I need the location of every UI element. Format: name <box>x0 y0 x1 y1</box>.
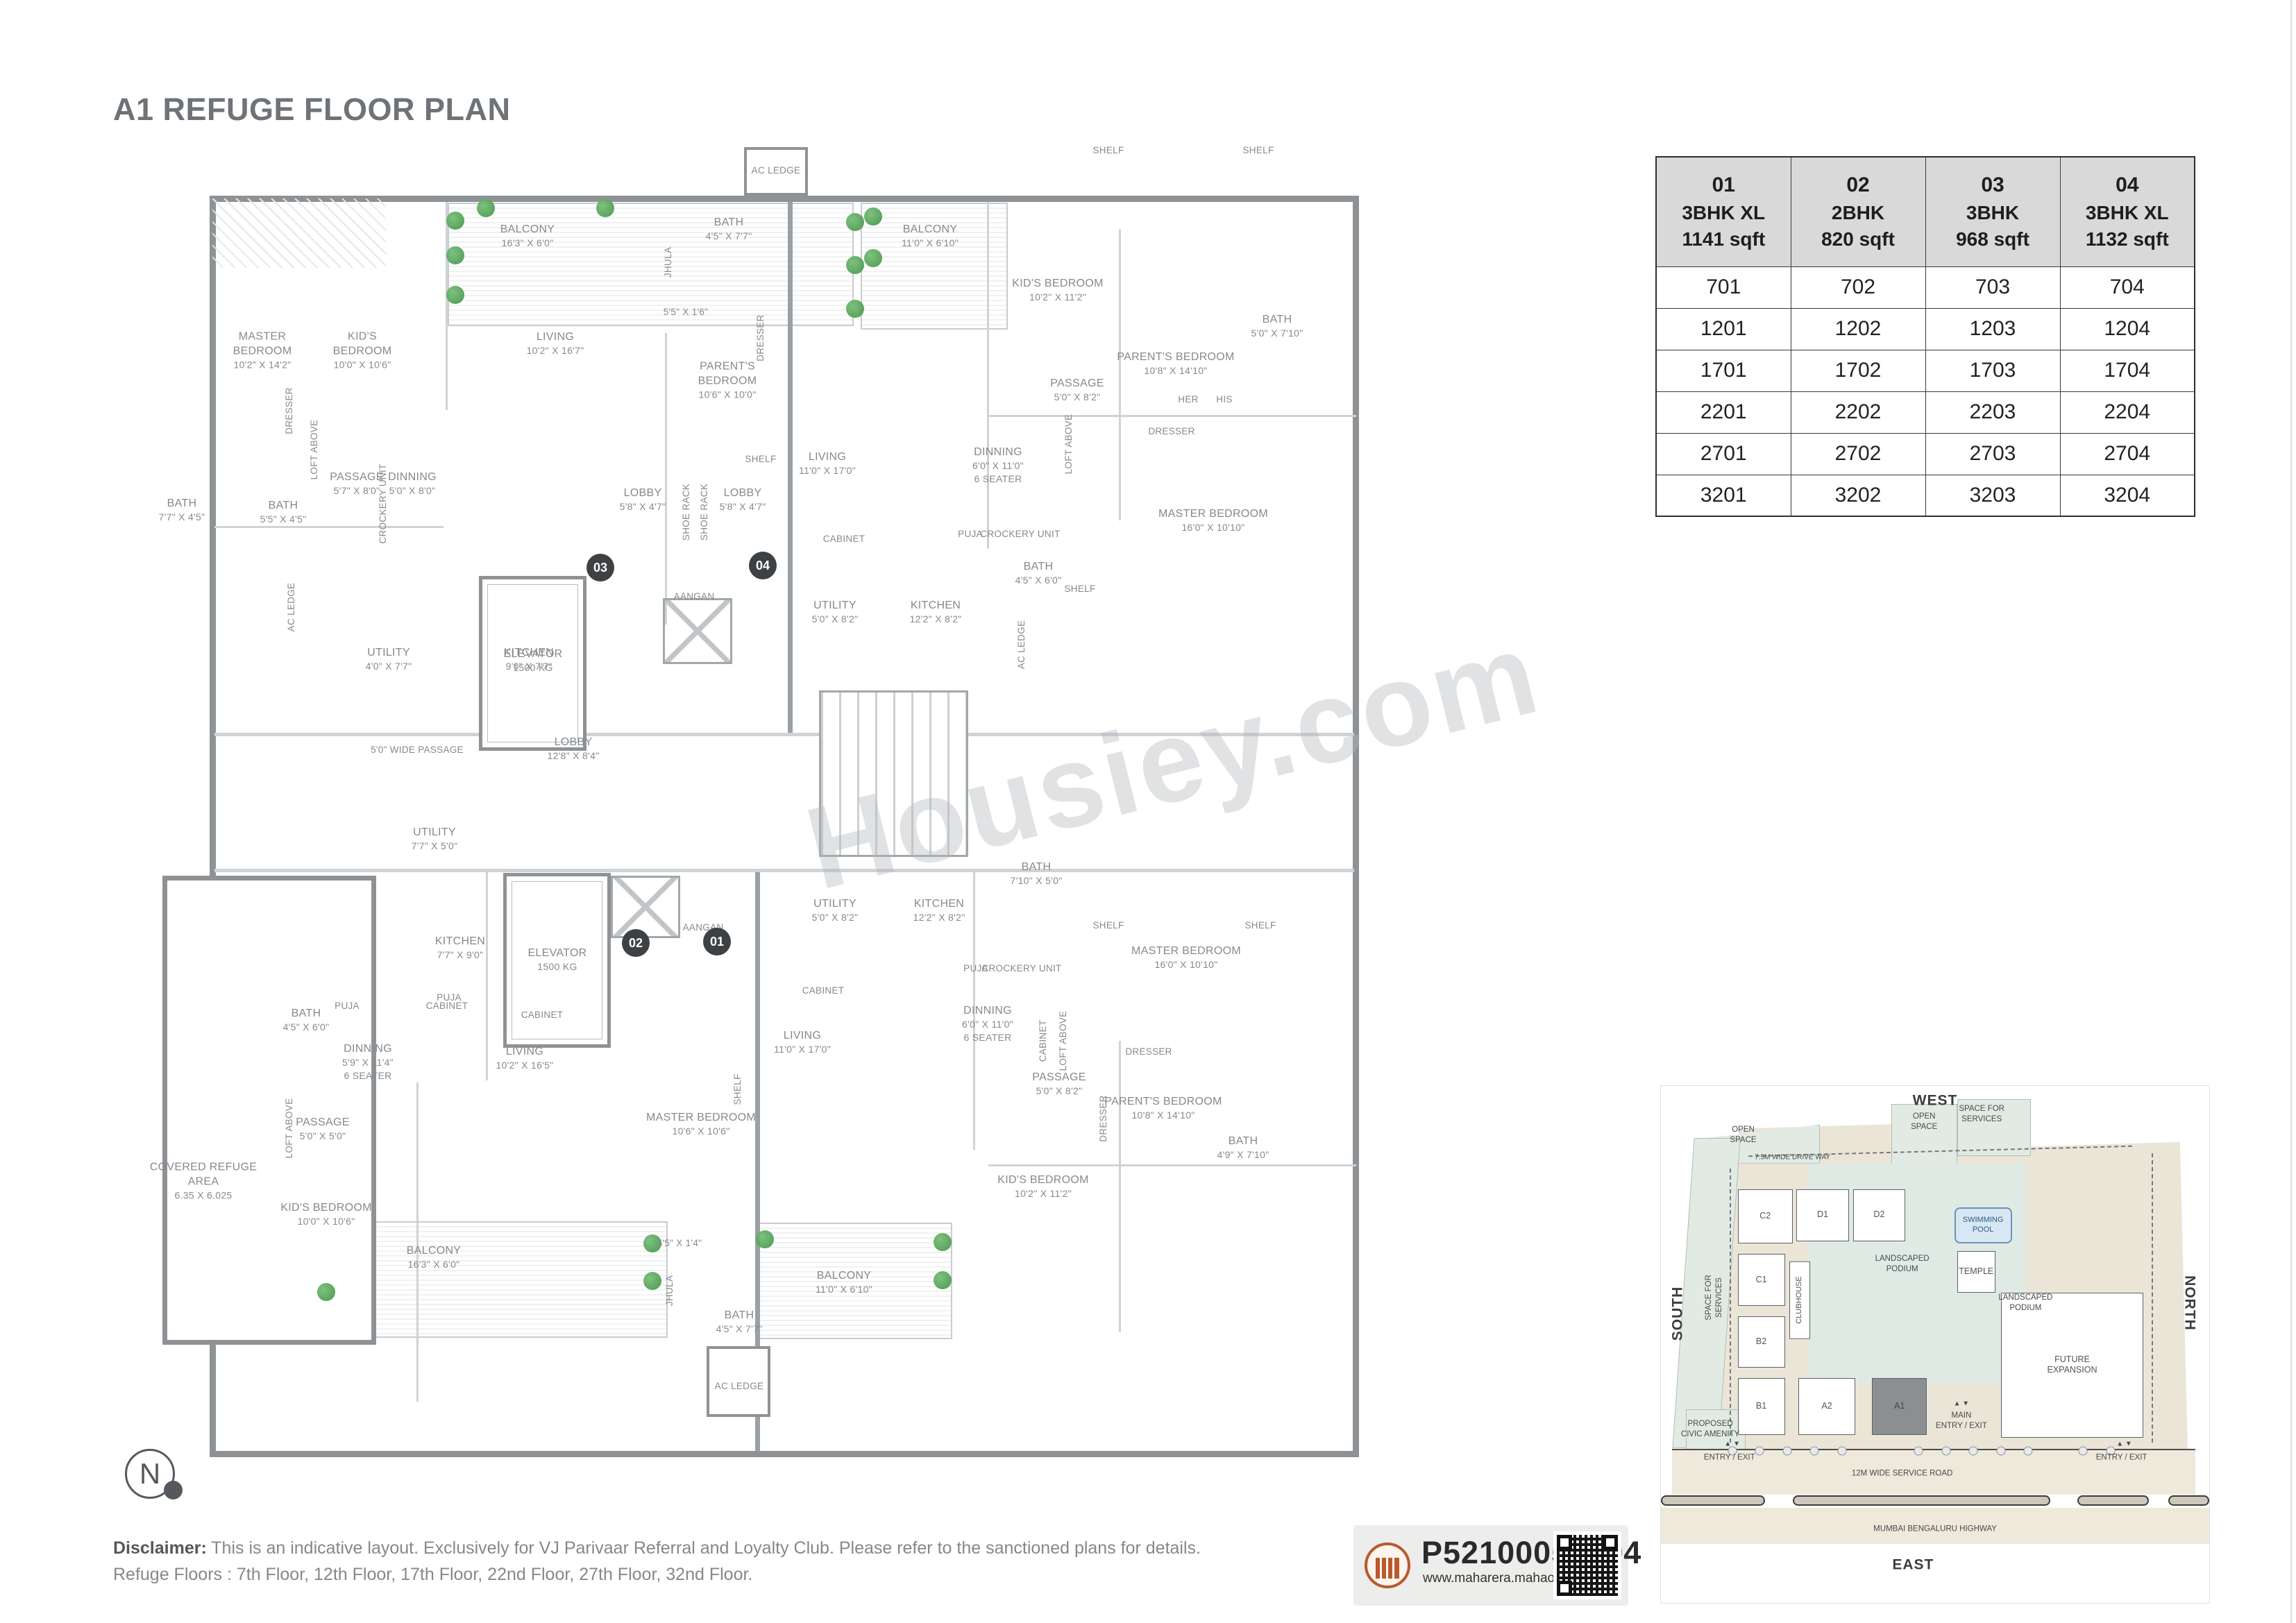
map-label-entry-exit: ENTRY / EXIT <box>2096 1453 2147 1463</box>
room-dimension: 7'7" X 4'5" <box>159 511 205 523</box>
room-label-balcony: BALCONY16'3" X 6'0" <box>407 1243 462 1271</box>
room-label-cabinet: CABINET <box>802 985 845 997</box>
room-label-passage: PASSAGE5'7" X 8'0" <box>330 470 383 498</box>
plant-icon <box>596 199 614 217</box>
room-label-dresser: DRESSER <box>1125 1046 1172 1058</box>
room-dimension: 10'0" X 10'6" <box>280 1215 371 1227</box>
room-dimension: 11'0" X 6'10" <box>902 237 959 249</box>
room-label-cabinet: CABINET <box>521 1009 564 1021</box>
site-building-d2: D2 <box>1853 1189 1906 1241</box>
unit-badge-04: 04 <box>749 552 777 579</box>
tree-icon <box>1941 1446 1950 1455</box>
room-label-loft-above: LOFT ABOVE <box>1063 414 1075 475</box>
room-dimension: 1500 KG <box>527 960 586 973</box>
room-label-shelf: SHELF <box>732 1073 744 1105</box>
site-building-c2: C2 <box>1738 1189 1793 1243</box>
wall <box>214 526 444 528</box>
room-label-loft-above: LOFT ABOVE <box>283 1098 296 1159</box>
disclaimer-text: This is an indicative layout. Exclusivel… <box>207 1538 1201 1558</box>
room-label-dinning: DINNING6'0" X 11'0" 6 SEATER <box>962 1003 1013 1044</box>
unit-cell-1703: 1703 <box>1925 350 2060 391</box>
site-building-future-expansion: FUTURE EXPANSION <box>2001 1293 2143 1438</box>
room-dimension: 4'0" X 7'7" <box>366 660 412 672</box>
room-label-dinning: DINNING6'0" X 11'0" 6 SEATER <box>972 445 1024 485</box>
plant-icon <box>846 256 864 274</box>
room-label-5-5-x-1-4: 5'5" X 1'4" <box>657 1237 702 1250</box>
site-building-clubhouse: CLUBHOUSE <box>1789 1261 1810 1339</box>
plant-icon <box>446 212 464 230</box>
room-dimension: 10'8" X 14'10" <box>1104 1109 1222 1121</box>
room-label-bath: BATH7'10" X 5'0" <box>1011 860 1063 887</box>
site-building-d1: D1 <box>1796 1189 1849 1241</box>
plant-icon <box>864 207 882 226</box>
tree-icon <box>1914 1446 1923 1455</box>
room-label-ac-ledge: AC LEDGE <box>752 164 801 177</box>
wall <box>446 202 448 410</box>
room-label-dinning: DINNING5'9" X 11'4" 6 SEATER <box>342 1042 394 1082</box>
page-title: A1 REFUGE FLOOR PLAN <box>113 92 511 128</box>
room-label-puja: PUJA <box>335 1000 360 1012</box>
room-dimension: 12'8" X 8'4" <box>548 749 600 762</box>
tree-icon <box>2079 1446 2088 1455</box>
room-label-shelf: SHELF <box>1064 583 1095 595</box>
unit-badge-01: 01 <box>703 928 731 955</box>
refuge-floors-note: Refuge Floors : 7th Floor, 12th Floor, 1… <box>113 1565 752 1584</box>
wall <box>988 1164 1356 1166</box>
site-building-b2: B2 <box>1738 1316 1785 1368</box>
plant-icon <box>446 246 464 264</box>
room-dimension: 11'0" X 17'0" <box>774 1043 831 1055</box>
room-label-bath: BATH7'7" X 4'5" <box>159 496 205 524</box>
wall <box>788 202 793 733</box>
room-label-kitchen: KITCHEN12'2" X 8'2" <box>910 598 962 626</box>
room-dimension: 7'7" X 5'0" <box>412 840 458 852</box>
room-label-balcony: BALCONY11'0" X 6'10" <box>816 1268 872 1296</box>
room-label-utility: UTILITY5'0" X 8'2" <box>812 897 859 924</box>
room-label-kitchen: KITCHEN12'2" X 8'2" <box>913 897 965 924</box>
room-dimension: 6'0" X 11'0" 6 SEATER <box>972 459 1024 485</box>
map-label-proposed-civic-amenity: PROPOSED CIVIC AMENITY <box>1681 1419 1739 1440</box>
unit-table-row: 1201120212031204 <box>1656 308 2195 350</box>
wall <box>214 733 1354 736</box>
room-dimension: 10'2" X 14'2" <box>233 359 292 371</box>
room-dimension: 7'10" X 5'0" <box>1011 874 1063 887</box>
room-dimension: 5'8" X 4'7" <box>620 500 666 513</box>
room-label-parent-s-bedroom: PARENT'S BEDROOM10'8" X 14'10" <box>1104 1094 1222 1122</box>
room-dimension: 4'5" X 7'7" <box>706 230 752 242</box>
room-label-bath: BATH4'9" X 7'10" <box>1217 1134 1269 1162</box>
map-label-7-5m-wide-drive-way: 7.5M WIDE DRIVE WAY <box>1755 1153 1830 1162</box>
room-label-bath: BATH5'5" X 4'5" <box>260 498 307 526</box>
duct-shaft <box>611 876 680 938</box>
unit-cell-3202: 3202 <box>1791 475 1925 516</box>
room-label-bath: BATH4'5" X 7'7" <box>716 1308 763 1336</box>
room-label-shelf: SHELF <box>1242 144 1274 157</box>
highway-median <box>2168 1495 2209 1506</box>
unit-cell-1202: 1202 <box>1791 308 1925 350</box>
room-label-dresser: DRESSER <box>1097 1095 1110 1141</box>
room-dimension: 5'0" X 8'2" <box>812 613 859 625</box>
room-dimension: 16'3" X 6'0" <box>407 1258 462 1271</box>
unit-cell-704: 704 <box>2060 266 2195 308</box>
unit-table-row: 2201220222032204 <box>1656 391 2195 433</box>
direction-south: SOUTH <box>1668 1286 1687 1341</box>
plant-icon <box>934 1271 952 1289</box>
covered-refuge-area-box <box>162 876 376 1345</box>
unit-cell-1701: 1701 <box>1656 350 1791 391</box>
room-label-master-bedroom: MASTER BEDROOM16'0" X 10'10" <box>1158 507 1268 534</box>
tree-icon <box>1969 1446 1978 1455</box>
unit-cell-1201: 1201 <box>1656 308 1791 350</box>
room-label-shelf: SHELF <box>1092 919 1124 932</box>
room-dimension: 10'6" X 10'6" <box>646 1125 756 1137</box>
unit-cell-2702: 2702 <box>1791 433 1925 475</box>
map-label-open-space: OPEN SPACE <box>1911 1112 1937 1132</box>
road-edge <box>1672 1449 2195 1450</box>
room-dimension: 1500 KG <box>503 661 562 674</box>
room-label-her: HER <box>1178 393 1198 406</box>
room-dimension: 16'3" X 6'0" <box>500 237 555 249</box>
room-label-covered-refuge-area: COVERED REFUGE AREA6.35 X 6.025 <box>150 1160 257 1203</box>
room-label-lobby: LOBBY12'8" X 8'4" <box>548 735 600 763</box>
room-dimension: 16'0" X 10'10" <box>1131 958 1241 971</box>
site-map: C2D1D2C1CLUBHOUSEB2B1A2A1FUTURE EXPANSIO… <box>1660 1085 2210 1604</box>
room-dimension: 6'0" X 11'0" 6 SEATER <box>962 1018 1013 1044</box>
unit-column-header-04: 043BHK XL1132 sqft <box>2060 157 2195 266</box>
room-dimension: 7'7" X 9'0" <box>435 949 485 961</box>
tree-icon <box>1996 1446 2005 1455</box>
unit-column-header-01: 013BHK XL1141 sqft <box>1656 157 1791 266</box>
direction-east: EAST <box>1892 1555 1934 1574</box>
room-dimension: 5'5" X 4'5" <box>260 513 307 525</box>
room-label-utility: UTILITY7'7" X 5'0" <box>412 825 458 853</box>
north-compass: N <box>125 1449 185 1504</box>
room-dimension: 10'2" X 11'2" <box>997 1187 1088 1200</box>
unit-cell-3204: 3204 <box>2060 475 2195 516</box>
room-label-living: LIVING11'0" X 17'0" <box>799 450 856 477</box>
unit-badge-03: 03 <box>586 554 614 581</box>
room-label-elevator: ELEVATOR1500 KG <box>503 647 562 674</box>
room-label-living: LIVING11'0" X 17'0" <box>774 1028 831 1056</box>
room-label-dresser: DRESSER <box>283 387 296 434</box>
room-dimension: 10'6" X 10'0" <box>698 389 757 401</box>
disclaimer: Disclaimer: This is an indicative layout… <box>113 1535 1293 1588</box>
plant-icon <box>846 300 864 318</box>
room-dimension: 11'0" X 17'0" <box>799 464 856 477</box>
plant-icon <box>864 249 882 267</box>
room-dimension: 10'2" X 16'5" <box>496 1059 553 1071</box>
room-label-balcony: BALCONY11'0" X 6'10" <box>902 222 959 250</box>
room-label-living: LIVING10'2" X 16'7" <box>526 330 584 357</box>
map-label-: ▲ ▼ <box>1954 1400 1970 1409</box>
unit-table-row: 2701270227032704 <box>1656 433 2195 475</box>
room-dimension: 11'0" X 6'10" <box>816 1283 872 1295</box>
room-dimension: 5'0" X 7'10" <box>1251 327 1303 339</box>
balcony-top-left <box>448 203 854 326</box>
site-building-a2: A2 <box>1798 1378 1856 1435</box>
driveway-dashed-line <box>1730 1169 1731 1443</box>
room-dimension: 12'2" X 8'2" <box>913 911 965 924</box>
room-label-parent-s-bedroom: PARENT'S BEDROOM10'8" X 14'10" <box>1117 350 1234 377</box>
room-label-loft-above: LOFT ABOVE <box>308 420 321 480</box>
room-label-bath: BATH4'5" X 6'0" <box>1015 559 1062 587</box>
direction-north: NORTH <box>2181 1275 2200 1331</box>
unit-number-table: 013BHK XL1141 sqft022BHK820 sqft033BHK96… <box>1655 156 2195 517</box>
tree-icon <box>1837 1446 1846 1455</box>
map-label-: ▲ ▼ <box>1724 1440 1740 1449</box>
compass-dot-icon <box>164 1481 183 1499</box>
wall <box>1119 1041 1121 1332</box>
wall <box>988 415 1356 417</box>
room-label-bath: BATH4'5" X 7'7" <box>706 215 752 243</box>
room-label-kid-s-bedroom: KID'S BEDROOM10'0" X 10'6" <box>280 1200 371 1228</box>
room-label-kid-s-bedroom: KID'S BEDROOM10'2" X 11'2" <box>997 1173 1088 1200</box>
room-label-ac-ledge: AC LEDGE <box>1015 620 1028 670</box>
room-dimension: 5'7" X 8'0" <box>330 484 383 497</box>
room-label-kid-s-bedroom: KID'S BEDROOM10'2" X 11'2" <box>1012 276 1103 304</box>
room-label-crockery-unit: CROCKERY UNIT <box>981 962 1061 975</box>
room-label-crockery-unit: CROCKERY UNIT <box>980 528 1060 541</box>
direction-west: WEST <box>1913 1091 1958 1110</box>
unit-cell-2701: 2701 <box>1656 433 1791 475</box>
room-label-shelf: SHELF <box>1244 919 1276 932</box>
room-label-master-bedroom: MASTER BEDROOM10'2" X 14'2" <box>233 330 292 372</box>
room-label-passage: PASSAGE5'0" X 8'2" <box>1032 1070 1086 1098</box>
site-building-b1: B1 <box>1738 1378 1785 1435</box>
room-label-ac-ledge: AC LEDGE <box>285 583 298 632</box>
plant-icon <box>934 1233 952 1251</box>
highway-median <box>2077 1495 2149 1506</box>
tree-icon <box>1810 1446 1819 1455</box>
room-dimension: 10'2" X 11'2" <box>1012 291 1103 303</box>
room-label-kid-s-bedroom: KID'S BEDROOM10'0" X 10'6" <box>333 330 392 372</box>
unit-column-header-03: 033BHK968 sqft <box>1925 157 2060 266</box>
brochure-page: A1 REFUGE FLOOR PLAN <box>0 0 2296 1623</box>
room-dimension: 5'8" X 4'7" <box>720 500 766 513</box>
tree-icon <box>1755 1446 1764 1455</box>
room-label-elevator: ELEVATOR1500 KG <box>527 946 586 974</box>
room-label-utility: UTILITY5'0" X 8'2" <box>812 598 859 626</box>
room-label-bath: BATH4'5" X 6'0" <box>283 1006 330 1034</box>
map-label-space-for-services: SPACE FOR SERVICES <box>1959 1104 2004 1125</box>
maharera-badge: P52100053194 www.maharera.mahaonline.gov… <box>1353 1525 1628 1606</box>
map-label-entry-exit: ENTRY / EXIT <box>1704 1453 1755 1463</box>
unit-cell-2703: 2703 <box>1925 433 2060 475</box>
unit-badge-02: 02 <box>622 929 650 957</box>
map-label-landscaped-podium: LANDSCAPED PODIUM <box>1998 1293 2052 1314</box>
room-label-cabinet: CABINET <box>426 1000 469 1012</box>
unit-cell-703: 703 <box>1925 266 2060 308</box>
room-dimension: 4'5" X 6'0" <box>283 1021 330 1033</box>
wall <box>486 872 488 1080</box>
room-dimension: 5'0" X 8'2" <box>812 911 859 924</box>
map-label-space-for-services: SPACE FOR SERVICES <box>1704 1275 1725 1321</box>
unit-cell-2204: 2204 <box>2060 391 2195 433</box>
unit-column-header-02: 022BHK820 sqft <box>1791 157 1925 266</box>
room-dimension: 5'0" X 8'0" <box>388 484 437 497</box>
room-dimension: 10'2" X 16'7" <box>526 344 584 357</box>
disclaimer-label: Disclaimer: <box>113 1538 207 1558</box>
unit-cell-2704: 2704 <box>2060 433 2195 475</box>
map-label-: ▲ ▼ <box>2116 1440 2132 1449</box>
room-dimension: 5'0" X 8'2" <box>1032 1085 1086 1097</box>
room-label-balcony: BALCONY16'3" X 6'0" <box>500 222 555 250</box>
tree-icon <box>1782 1446 1791 1455</box>
room-dimension: 10'0" X 10'6" <box>333 359 392 371</box>
room-dimension: 10'8" X 14'10" <box>1117 364 1234 377</box>
room-label-shelf: SHELF <box>1092 144 1124 157</box>
plant-icon <box>477 199 495 217</box>
room-label-5-0-wide-passage: 5'0" WIDE PASSAGE <box>371 744 464 756</box>
unit-cell-3203: 3203 <box>1925 475 2060 516</box>
site-building-temple: TEMPLE <box>1957 1251 1995 1293</box>
room-label-cabinet: CABINET <box>823 533 866 545</box>
highway-median <box>1793 1495 2050 1506</box>
unit-cell-2203: 2203 <box>1925 391 2060 433</box>
unit-table-row: 1701170217031704 <box>1656 350 2195 391</box>
room-label-living: LIVING10'2" X 16'5" <box>496 1044 553 1072</box>
room-label-crockery-unit: CROCKERY UNIT <box>377 464 389 543</box>
room-dimension: 5'0" X 8'2" <box>1050 391 1104 403</box>
qr-code <box>1553 1531 1621 1599</box>
unit-cell-3201: 3201 <box>1656 475 1791 516</box>
map-label-landscaped-podium: LANDSCAPED PODIUM <box>1875 1254 1930 1275</box>
staircase <box>819 690 968 857</box>
wall <box>665 333 667 624</box>
wall <box>214 869 1354 872</box>
duct-shaft <box>663 598 732 664</box>
room-label-shelf: SHELF <box>745 453 776 466</box>
driveway-dashed-line <box>2152 1153 2153 1443</box>
room-label-dresser: DRESSER <box>754 314 767 361</box>
room-label-shoe-rack: SHOE RACK <box>680 484 693 541</box>
unit-cell-702: 702 <box>1791 266 1925 308</box>
room-label-parent-s-bedroom: PARENT'S BEDROOM10'6" X 10'0" <box>698 359 757 402</box>
room-label-lobby: LOBBY5'8" X 4'7" <box>720 486 766 513</box>
highway-median <box>1661 1495 1765 1506</box>
wall <box>987 202 989 549</box>
room-dimension: 4'9" X 7'10" <box>1217 1148 1269 1161</box>
room-label-cabinet: CABINET <box>1037 1020 1049 1062</box>
tree-icon <box>2024 1446 2033 1455</box>
plant-icon <box>756 1230 774 1248</box>
site-building-a1: A1 <box>1872 1378 1927 1435</box>
unit-cell-1704: 1704 <box>2060 350 2195 391</box>
room-dimension: 4'5" X 7'7" <box>716 1323 763 1335</box>
room-dimension: 16'0" X 10'10" <box>1158 521 1268 534</box>
unit-table-row: 701702703704 <box>1656 266 2195 308</box>
maharera-logo-icon <box>1365 1543 1410 1588</box>
site-building-swimming-pool: SWIMMING POOL <box>1955 1207 2012 1243</box>
room-label-dinning: DINNING5'0" X 8'0" <box>388 470 437 498</box>
room-dimension: 12'2" X 8'2" <box>910 613 962 625</box>
room-label-his: HIS <box>1216 393 1232 406</box>
room-label-aangan: AANGAN <box>674 590 715 603</box>
room-label-jhula: JHULA <box>662 247 675 278</box>
room-dimension: 5'9" X 11'4" 6 SEATER <box>342 1056 394 1082</box>
map-label-open-space: OPEN SPACE <box>1730 1125 1756 1146</box>
room-label-ac-ledge: AC LEDGE <box>715 1380 764 1393</box>
plant-icon <box>643 1272 661 1290</box>
room-label-utility: UTILITY4'0" X 7'7" <box>366 645 412 673</box>
plant-icon <box>317 1283 335 1301</box>
map-label-12m-wide-service-road: 12M WIDE SERVICE ROAD <box>1852 1468 1953 1479</box>
room-label-lobby: LOBBY5'8" X 4'7" <box>620 486 666 513</box>
wall <box>416 1082 419 1402</box>
site-building-c1: C1 <box>1738 1254 1785 1306</box>
unit-cell-1203: 1203 <box>1925 308 2060 350</box>
room-dimension: 6.35 X 6.025 <box>150 1189 257 1202</box>
unit-cell-1204: 1204 <box>2060 308 2195 350</box>
room-label-passage: PASSAGE5'0" X 8'2" <box>1050 376 1104 404</box>
room-label-passage: PASSAGE5'0" X 5'0" <box>296 1115 349 1143</box>
page-edge-line <box>2290 0 2292 1623</box>
room-label-master-bedroom: MASTER BEDROOM16'0" X 10'10" <box>1131 944 1241 971</box>
room-label-bath: BATH5'0" X 7'10" <box>1251 312 1303 340</box>
unit-cell-2202: 2202 <box>1791 391 1925 433</box>
unit-cell-2201: 2201 <box>1656 391 1791 433</box>
room-dimension: 5'0" X 5'0" <box>296 1130 349 1142</box>
room-label-puja: PUJA <box>958 528 983 541</box>
room-label-loft-above: LOFT ABOVE <box>1057 1011 1070 1071</box>
room-label-shoe-rack: SHOE RACK <box>698 484 711 541</box>
unit-cell-1702: 1702 <box>1791 350 1925 391</box>
plant-icon <box>846 213 864 231</box>
unit-table-row: 3201320232033204 <box>1656 475 2195 516</box>
unit-cell-701: 701 <box>1656 266 1791 308</box>
map-label-mumbai-bengaluru-highway: MUMBAI BENGALURU HIGHWAY <box>1873 1524 1997 1535</box>
room-label-dresser: DRESSER <box>1148 425 1195 438</box>
void-hatch <box>212 198 386 268</box>
map-label-main-entry-exit: MAIN ENTRY / EXIT <box>1936 1411 1987 1431</box>
room-label-5-5-x-1-6: 5'5" X 1'6" <box>664 306 709 318</box>
room-dimension: 4'5" X 6'0" <box>1015 574 1062 586</box>
room-label-jhula: JHULA <box>664 1275 676 1306</box>
plant-icon <box>446 286 464 304</box>
room-label-master-bedroom: MASTER BEDROOM10'6" X 10'6" <box>646 1110 756 1138</box>
room-label-kitchen: KITCHEN7'7" X 9'0" <box>435 934 485 962</box>
